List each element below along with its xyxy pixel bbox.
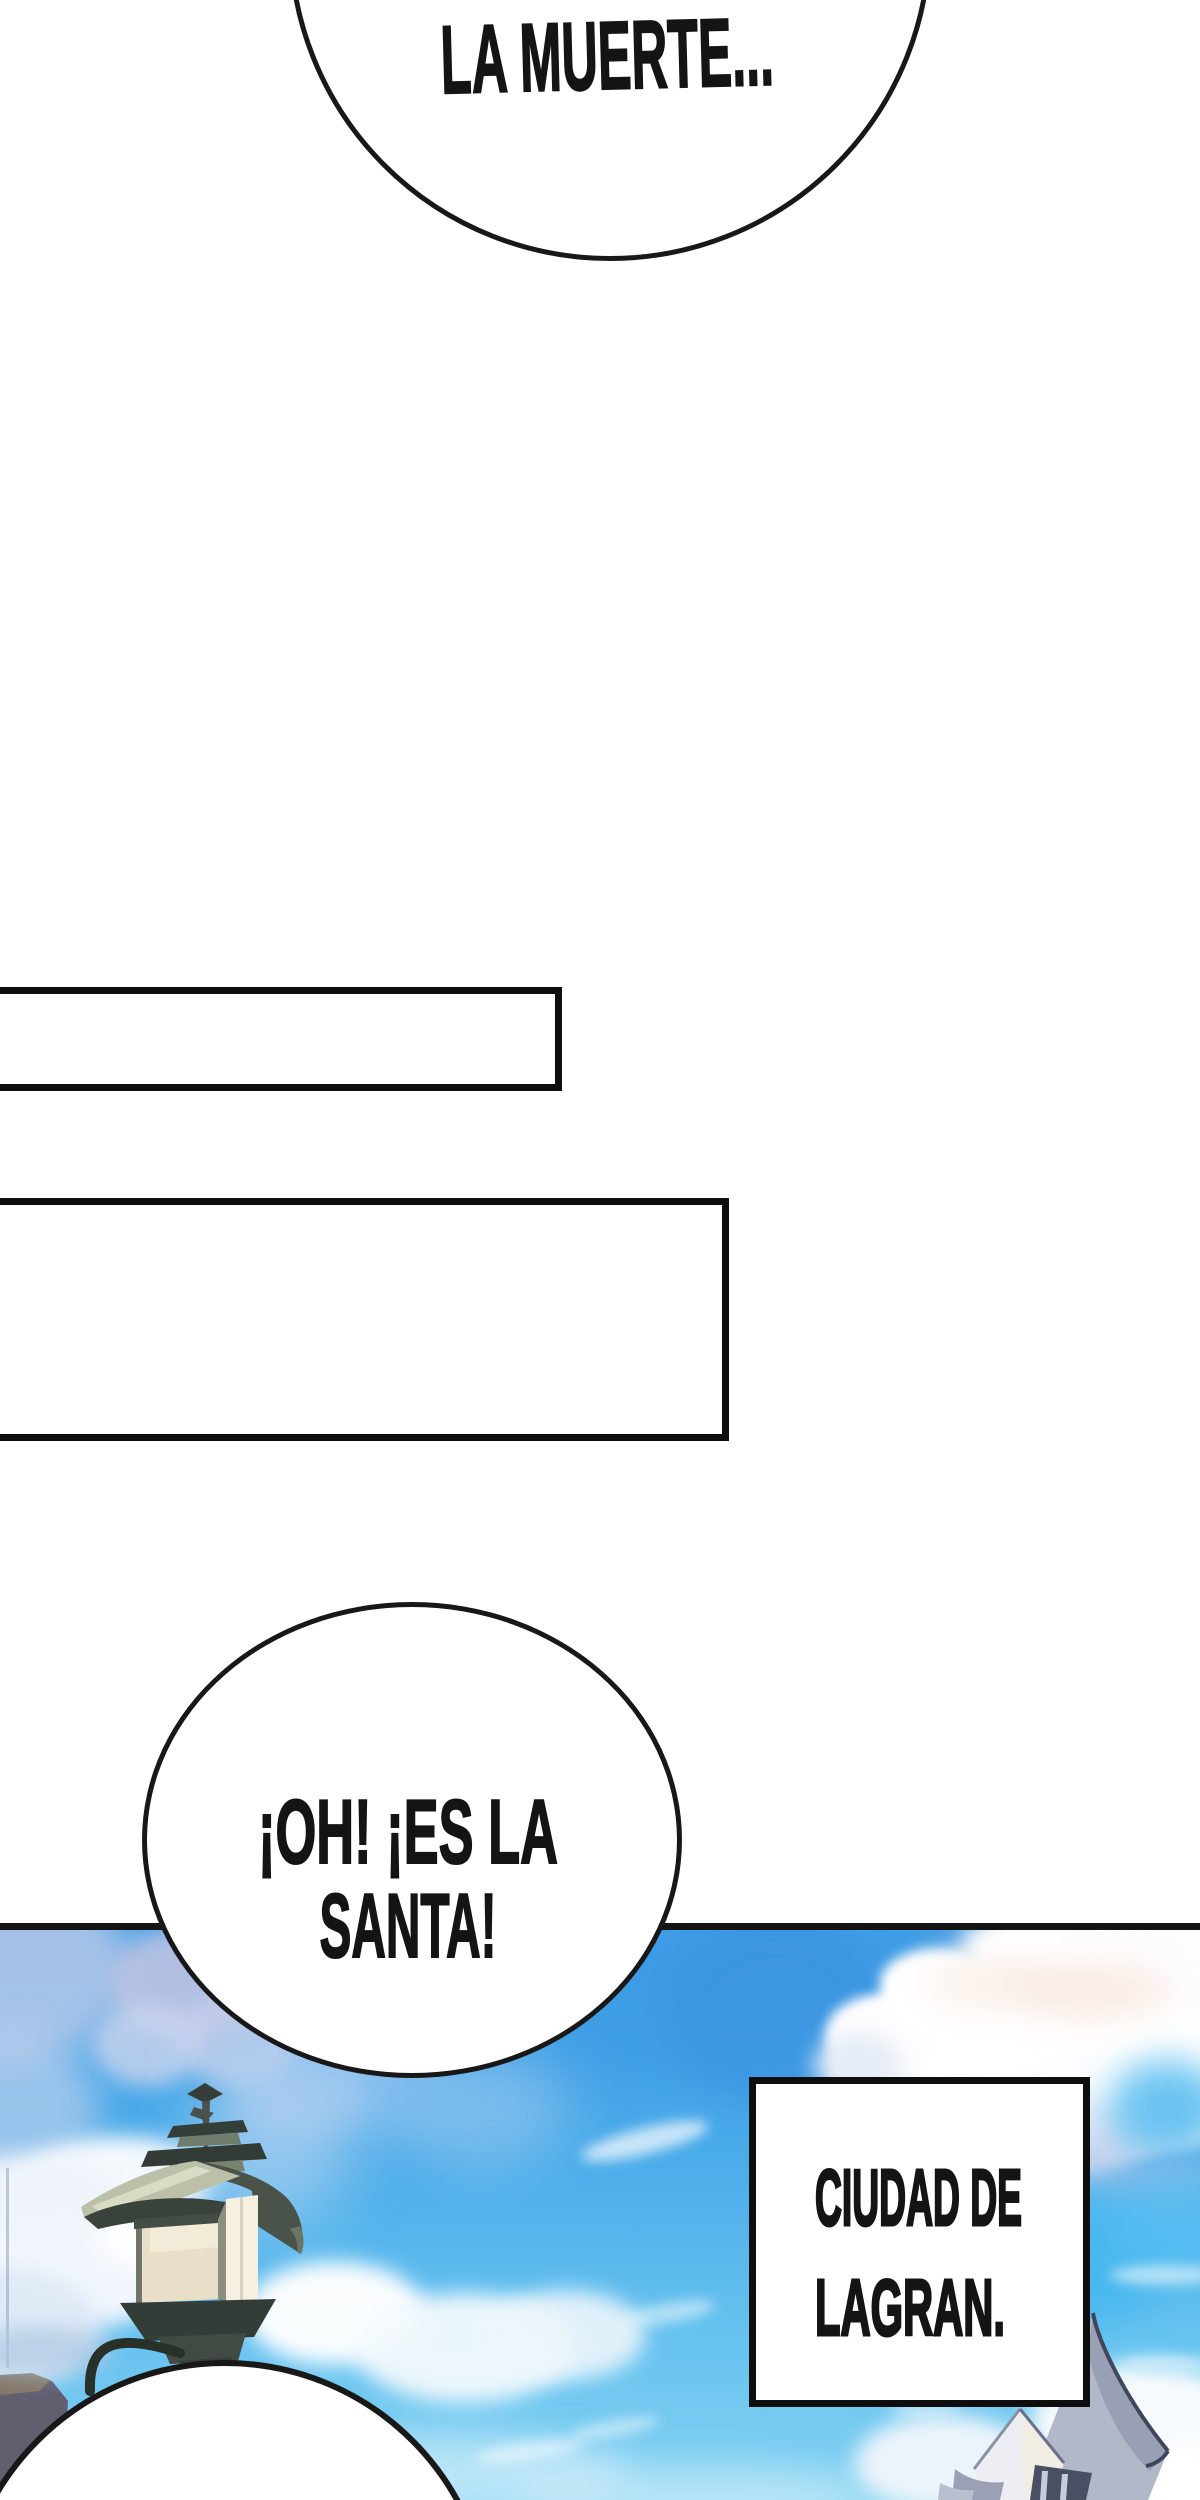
svg-text:¡OH! ¡ES LA: ¡OH! ¡ES LA bbox=[258, 1782, 558, 1883]
svg-text:LA MUERTE...: LA MUERTE... bbox=[439, 0, 775, 114]
svg-text:LAGRAN.: LAGRAN. bbox=[815, 2263, 1005, 2352]
svg-text:CIUDAD DE: CIUDAD DE bbox=[815, 2153, 1022, 2242]
svg-text:SANTA!: SANTA! bbox=[320, 1876, 497, 1977]
